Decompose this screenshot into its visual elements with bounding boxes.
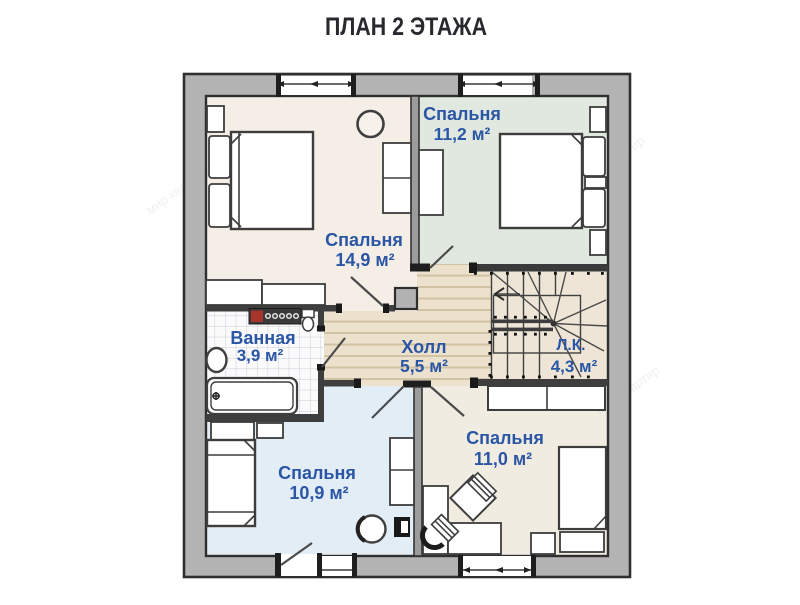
svg-text:11,2 м²: 11,2 м²: [434, 124, 491, 144]
svg-text:10,9 м²: 10,9 м²: [289, 483, 348, 503]
svg-text:Спальня: Спальня: [278, 463, 356, 483]
svg-text:ПЛАН 2 ЭТАЖА: ПЛАН 2 ЭТАЖА: [325, 13, 487, 41]
svg-text:Холл: Холл: [401, 337, 446, 357]
svg-text:11,0 м²: 11,0 м²: [474, 449, 532, 469]
svg-text:Спальня: Спальня: [325, 230, 403, 250]
svg-text:3,9 м²: 3,9 м²: [237, 346, 284, 365]
svg-text:Ванная: Ванная: [230, 328, 295, 348]
svg-text:Спальня: Спальня: [466, 428, 544, 448]
svg-text:4,3 м²: 4,3 м²: [551, 357, 598, 376]
svg-text:Л.К.: Л.К.: [557, 337, 586, 354]
svg-text:14,9 м²: 14,9 м²: [335, 250, 394, 270]
svg-text:5,5 м²: 5,5 м²: [400, 356, 448, 376]
svg-text:Спальня: Спальня: [423, 104, 501, 124]
